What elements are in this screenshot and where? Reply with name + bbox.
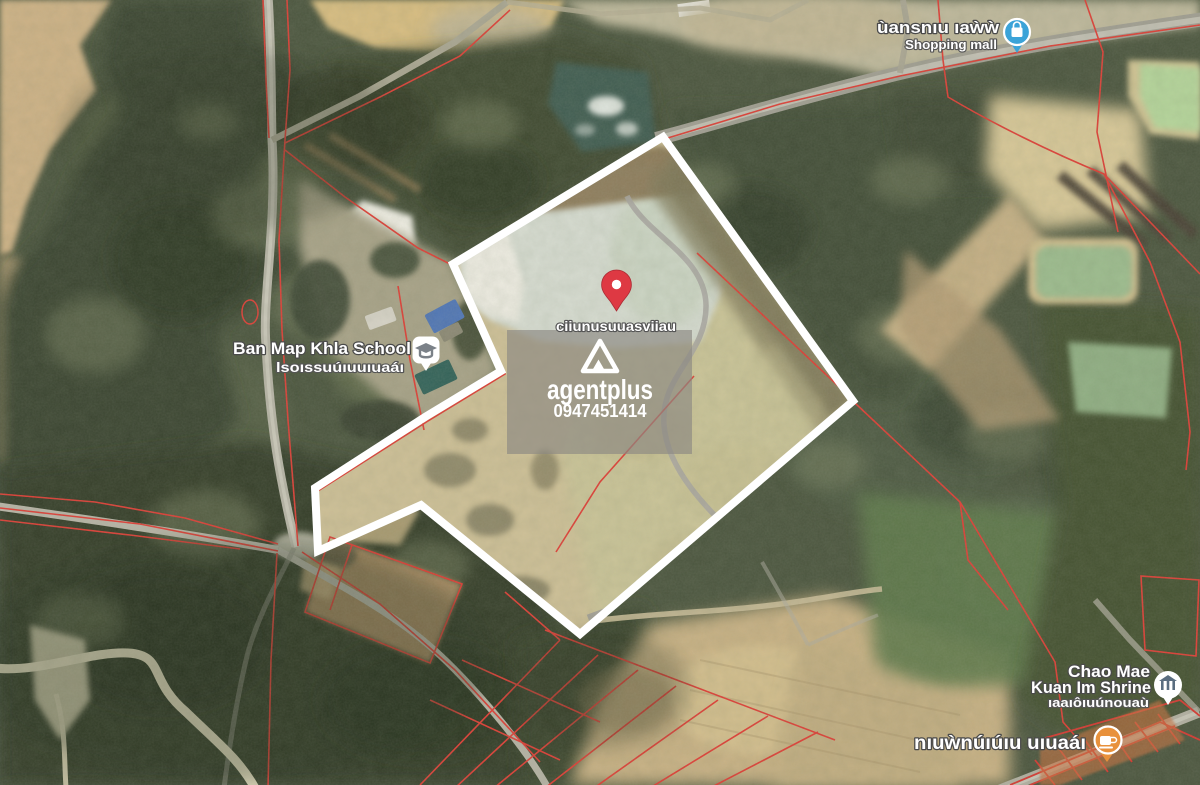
svg-text:0947451414: 0947451414	[554, 401, 647, 421]
svg-text:ciiunusuuasviiau: ciiunusuuasviiau	[556, 319, 676, 334]
svg-text:Shopping mall: Shopping mall	[905, 38, 997, 52]
svg-text:ıaaıôıuúnouaù: ıaaıôıuúnouaù	[1048, 696, 1149, 710]
svg-text:ùansnıu ıaẁẁ: ùansnıu ıaẁẁ	[877, 18, 1000, 37]
svg-text:Ban Map Khla School: Ban Map Khla School	[233, 340, 411, 358]
svg-text:nıuẁnúıúıu uıuaáı: nıuẁnúıúıu uıuaáı	[914, 733, 1086, 754]
svg-text:lsoıssuúıuuıuaáı: lsoıssuúıuuıuaáı	[276, 360, 404, 375]
svg-text:Kuan Im Shrine: Kuan Im Shrine	[1031, 679, 1151, 697]
